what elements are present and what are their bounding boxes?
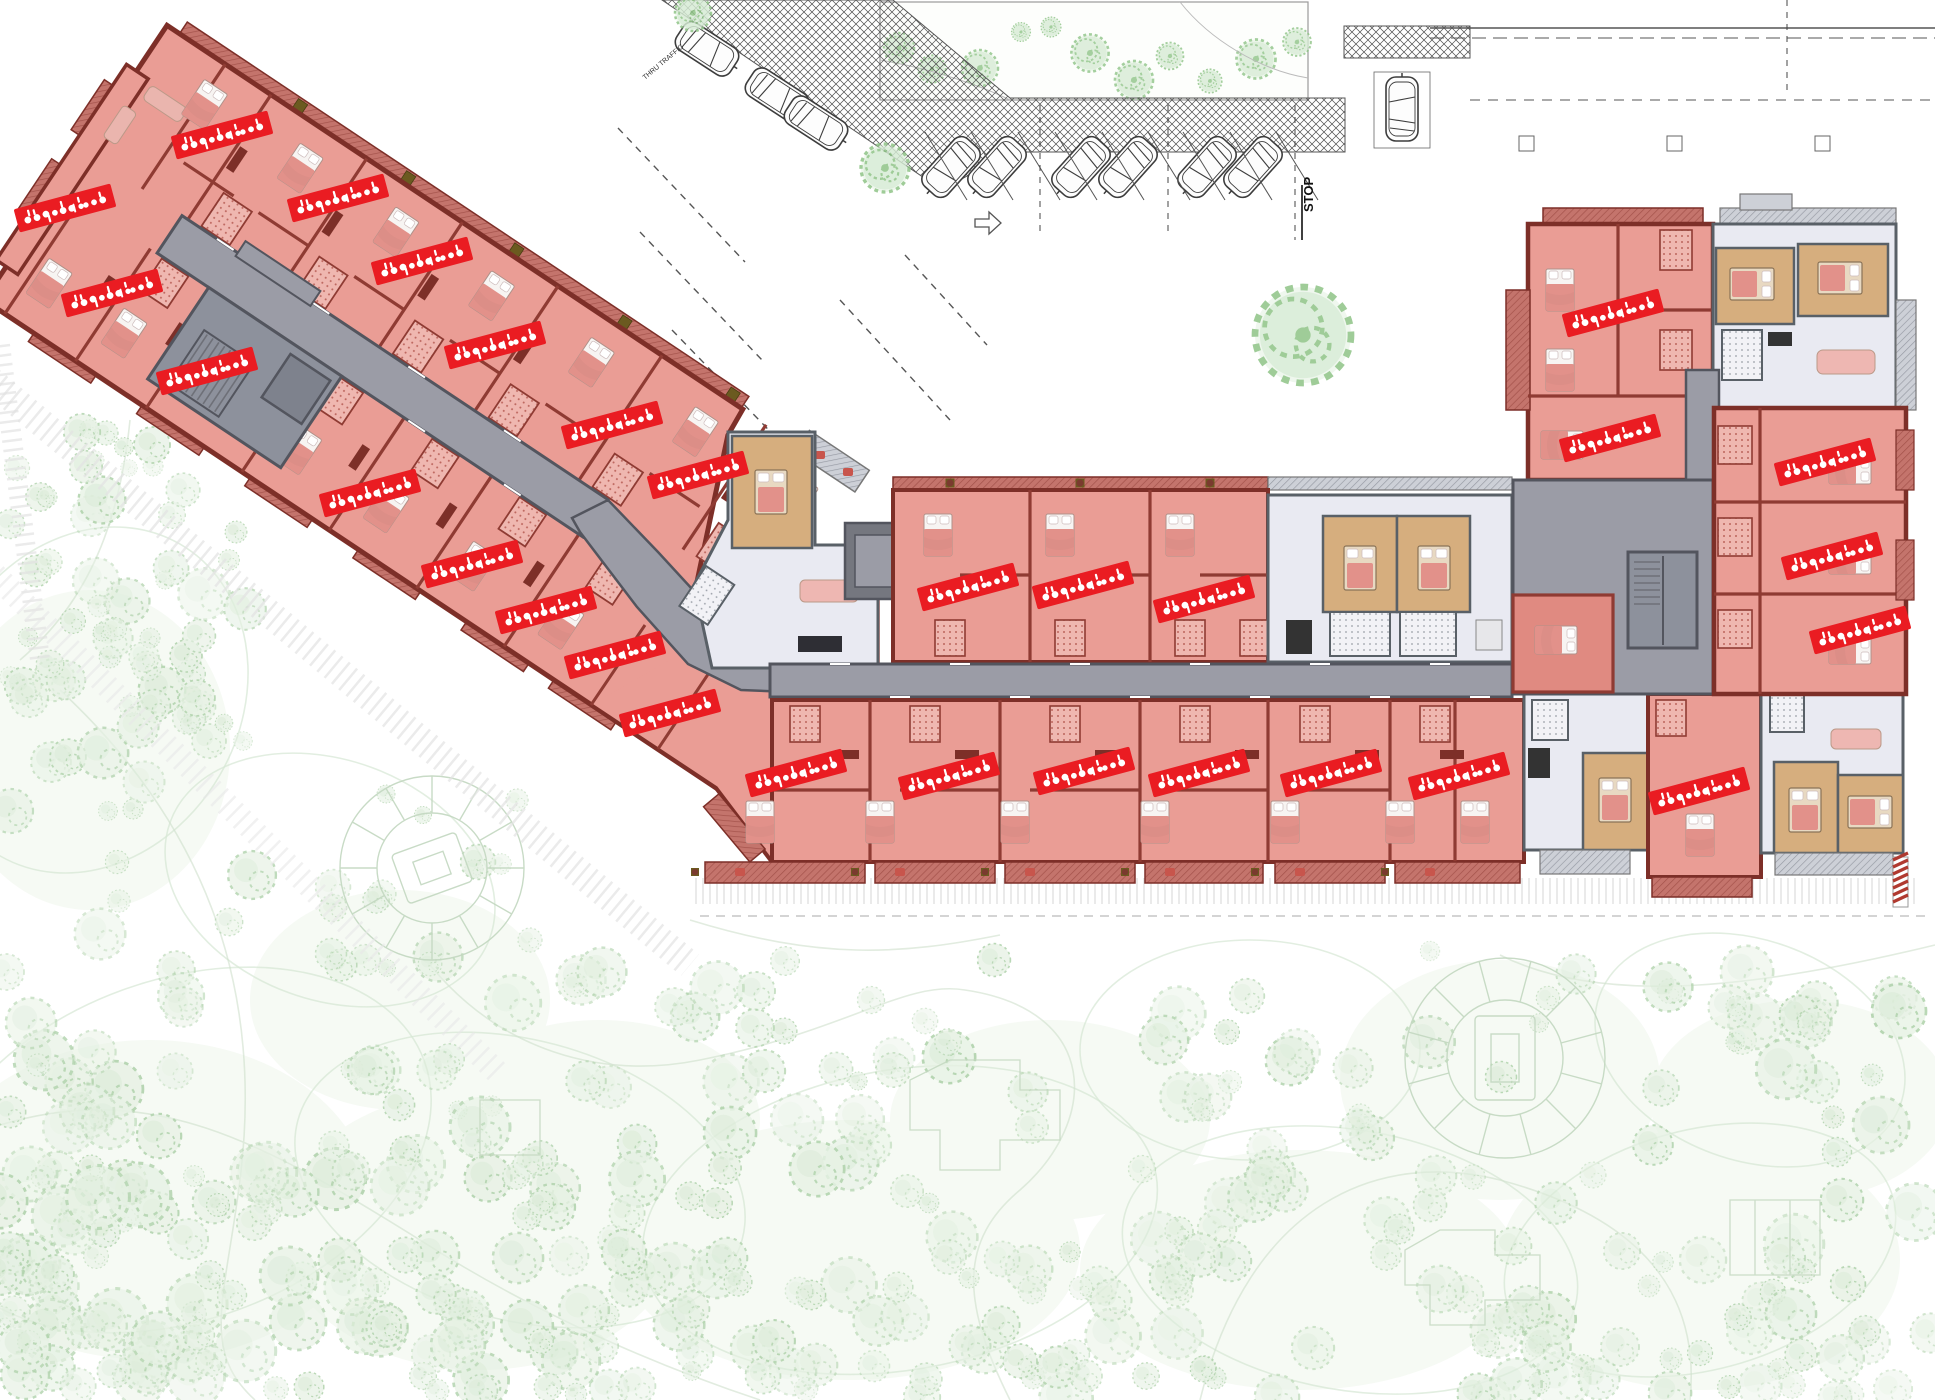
svg-text:STOP: STOP <box>1301 177 1316 212</box>
